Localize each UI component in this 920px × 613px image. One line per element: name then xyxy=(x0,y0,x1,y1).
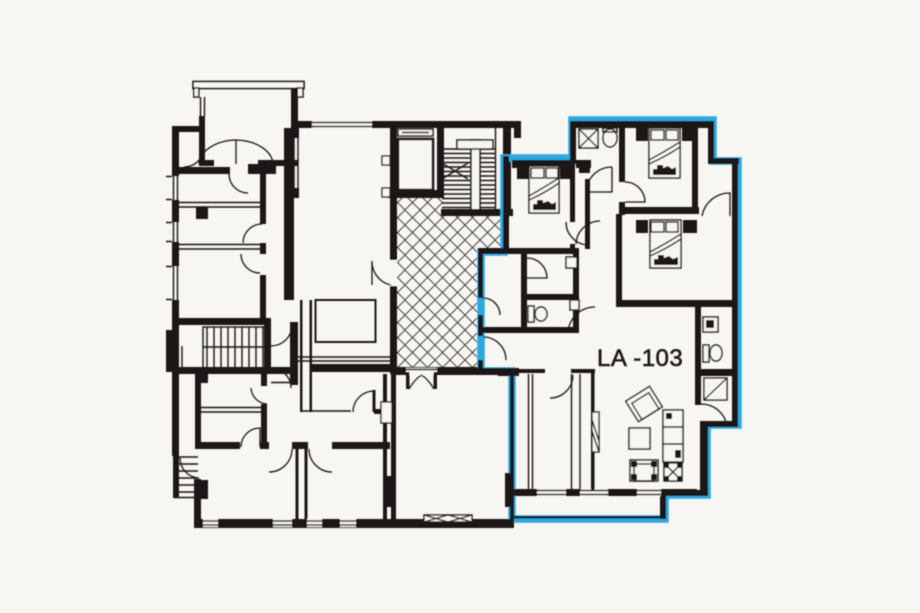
svg-text:LA -103: LA -103 xyxy=(597,345,683,372)
